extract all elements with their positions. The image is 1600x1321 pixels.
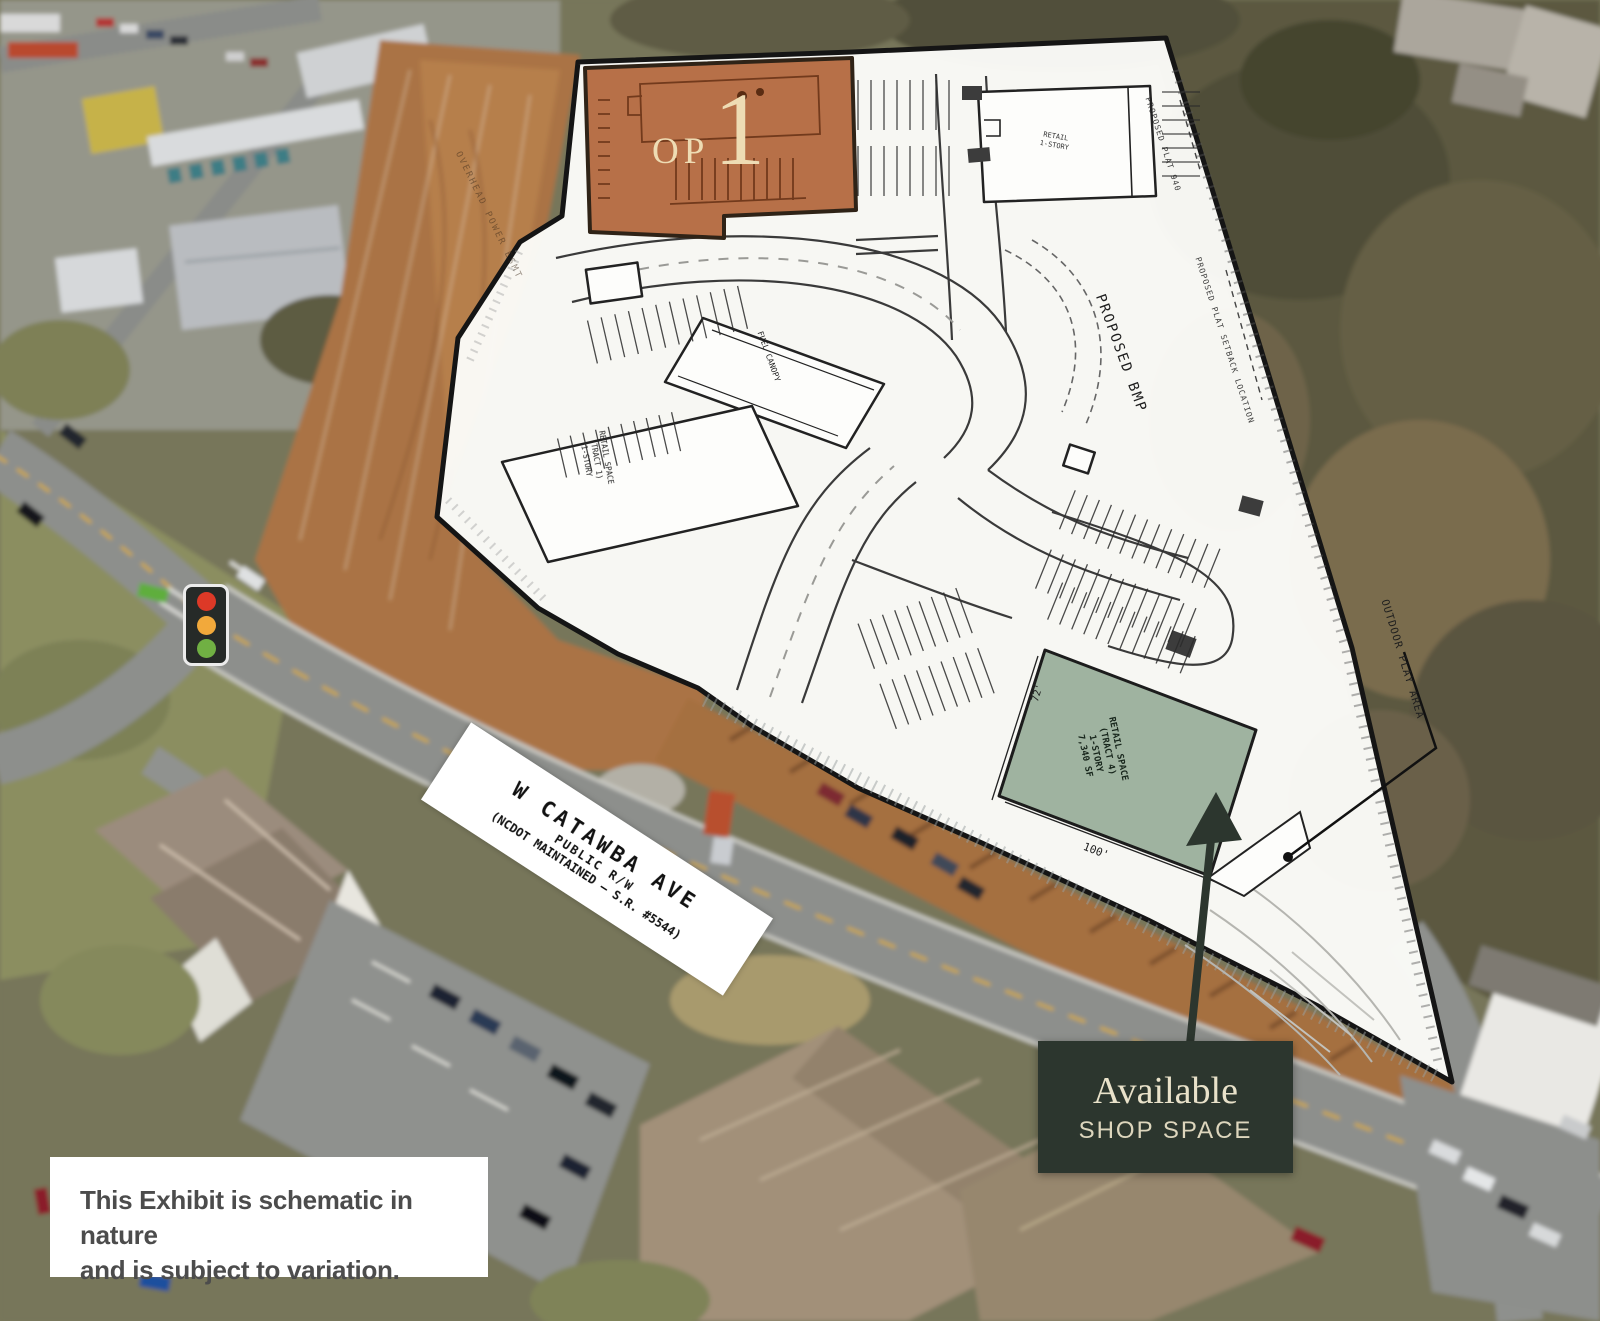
building-small xyxy=(586,263,642,304)
traffic-light-red xyxy=(197,592,216,611)
exhibit-canvas: OP 1 PROPOSED BMP PROPOSED PLAT 940 PROP… xyxy=(0,0,1600,1321)
traffic-light-icon xyxy=(183,584,229,666)
available-shop-space-badge: Available SHOP SPACE xyxy=(1038,1041,1293,1173)
traffic-light-amber xyxy=(197,616,216,635)
disclaimer-line1: This Exhibit is schematic in nature xyxy=(80,1183,488,1253)
disclaimer-line2: and is subject to variation. xyxy=(80,1253,488,1288)
disclaimer-box: This Exhibit is schematic in nature and … xyxy=(50,1157,488,1277)
badge-subtitle: SHOP SPACE xyxy=(1079,1117,1253,1145)
traffic-light-green xyxy=(197,639,216,658)
badge-title: Available xyxy=(1093,1069,1238,1113)
aerial-site-plan-graphic xyxy=(0,0,1600,1321)
outparcel-op1-label: OP 1 xyxy=(652,86,765,174)
op-prefix: OP xyxy=(652,130,709,173)
op-number: 1 xyxy=(713,86,765,174)
